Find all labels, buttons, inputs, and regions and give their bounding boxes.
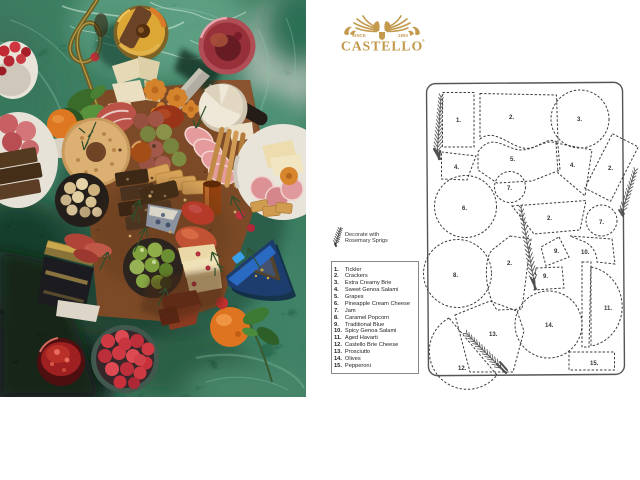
svg-text:4.: 4.: [570, 163, 575, 169]
svg-text:1893: 1893: [398, 33, 409, 38]
svg-text:4.: 4.: [454, 165, 459, 171]
svg-text:5.: 5.: [510, 157, 515, 163]
svg-text:10.: 10.: [581, 250, 590, 256]
svg-text:2.: 2.: [507, 261, 512, 267]
svg-text:7.: 7.: [599, 220, 604, 226]
svg-text:2.: 2.: [608, 166, 613, 172]
svg-text:CASTELLO: CASTELLO: [341, 39, 423, 54]
svg-text:2.: 2.: [547, 216, 552, 222]
svg-text:15.: 15.: [590, 361, 599, 367]
svg-text:6.: 6.: [462, 206, 467, 212]
svg-text:13.: 13.: [489, 332, 498, 338]
svg-text:®: ®: [422, 38, 425, 43]
svg-text:11.: 11.: [604, 306, 612, 312]
svg-text:7.: 7.: [507, 186, 512, 192]
svg-text:14.: 14.: [545, 323, 554, 329]
svg-text:9.: 9.: [554, 249, 559, 255]
svg-text:2.: 2.: [509, 115, 514, 121]
svg-text:12.: 12.: [458, 366, 467, 372]
svg-text:1.: 1.: [456, 118, 461, 124]
svg-text:8.: 8.: [453, 273, 458, 279]
svg-text:3.: 3.: [577, 117, 582, 123]
svg-text:9.: 9.: [543, 274, 548, 280]
svg-text:SINCE: SINCE: [352, 33, 366, 38]
